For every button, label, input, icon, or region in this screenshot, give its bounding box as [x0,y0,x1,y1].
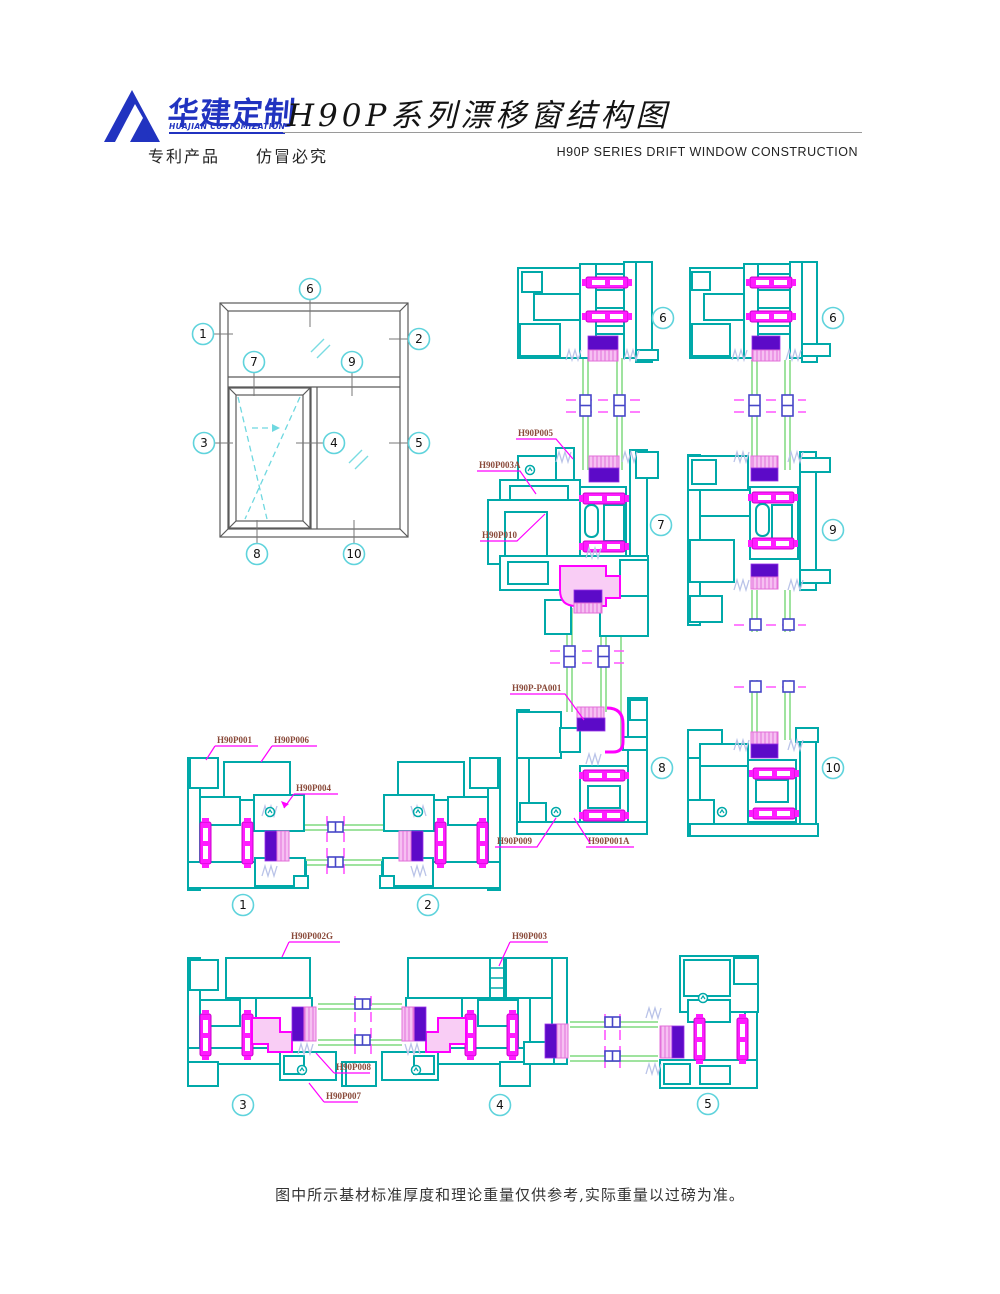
glazing-block [751,468,778,481]
svg-text:3: 3 [239,1098,247,1112]
glazing-block [265,831,277,861]
glazing-block [574,590,602,603]
glazing-block [751,744,778,758]
svg-text:7: 7 [250,355,258,369]
callout-5: 5 [698,1094,719,1115]
glazing-pad [751,732,778,744]
glazing-block [545,1024,557,1058]
section-7-mid [488,448,658,636]
svg-text:4: 4 [496,1098,504,1112]
svg-text:8: 8 [253,547,261,561]
part-label-h90p006: H90P006 [261,735,317,762]
elevation-callout-2: 2 [409,329,430,350]
svg-text:9: 9 [348,355,356,369]
glazing-pad [588,350,618,361]
svg-text:H90P002G: H90P002G [291,931,333,941]
section-6-right [690,262,830,362]
gasket [749,808,799,819]
svg-text:H90P008: H90P008 [336,1062,371,1072]
glass-run-mid-upper [566,358,640,470]
callout-6-mid: 6 [653,308,674,329]
svg-text:H90P006: H90P006 [274,735,309,745]
glazing-block [752,336,780,350]
callout-7-mid: 7 [651,515,672,536]
gasket [200,1010,211,1060]
callout-10-right: 10 [823,758,844,779]
svg-text:10: 10 [346,547,361,561]
glazing-block [672,1026,684,1058]
svg-text:6: 6 [829,311,837,325]
gasket [737,1014,748,1064]
footer-note: 图中所示基材标准厚度和理论重量仅供参考,实际重量以过磅为准。 [0,1184,1000,1205]
svg-text:H90P007: H90P007 [326,1091,361,1101]
glazing-block [577,718,605,731]
section-6-mid [518,262,658,362]
elevation-callout-4: 4 [324,433,345,454]
glazing-block [751,564,778,577]
glazing-pad [751,456,778,468]
elevation-callout-5: 5 [409,433,430,454]
svg-text:9: 9 [829,523,837,537]
glass-break-symbol [605,1014,620,1068]
glass-break-symbol [566,395,640,416]
callout-3: 3 [233,1095,254,1116]
operable-sash [229,388,310,528]
gasket [579,493,629,504]
glazing-pad [277,831,289,861]
glazing-pad [751,577,778,589]
svg-text:H90P003A: H90P003A [479,460,521,470]
part-label-h90p002g: H90P002G [282,931,340,957]
svg-text:3: 3 [200,436,208,450]
svg-text:6: 6 [659,311,667,325]
gasket [746,277,796,288]
construction-drawing: 1 2 3 4 5 6 7 8 9 10 [0,0,1000,1294]
glazing-pad [304,1007,316,1041]
callout-8-mid: 8 [652,758,673,779]
gasket [748,538,798,549]
elevation-callout-10: 10 [344,544,365,565]
elevation-callout-8: 8 [247,544,268,565]
svg-text:1: 1 [199,327,207,341]
section-10-right [688,728,818,836]
svg-text:H90P010: H90P010 [482,530,517,540]
glazing-block [589,468,619,482]
glass-run-row2-right [570,1014,658,1068]
window-elevation: 1 2 3 4 5 6 7 8 9 10 [193,279,430,565]
svg-text:H90P009: H90P009 [497,836,532,846]
section-8-mid [517,698,647,834]
elevation-callout-6: 6 [300,279,321,300]
glazing-pad [557,1024,568,1058]
callout-9-right: 9 [823,520,844,541]
glass-run-right-upper [734,360,806,470]
svg-text:7: 7 [657,518,665,532]
sash-swing-lines [238,397,300,519]
svg-text:5: 5 [415,436,423,450]
elevation-callout-1: 1 [193,324,214,345]
gasket [749,768,799,779]
callout-2: 2 [418,895,439,916]
svg-text:H90P004: H90P004 [296,783,331,793]
elevation-callout-3: 3 [194,433,215,454]
gasket [582,277,632,288]
callout-6-right: 6 [823,308,844,329]
gasket [200,818,211,868]
section-1-left [188,758,308,890]
section-2-right [380,758,500,890]
gasket [579,541,629,552]
gasket [579,770,629,781]
svg-text:H90P001: H90P001 [217,735,252,745]
callout-1: 1 [233,895,254,916]
svg-text:4: 4 [330,436,338,450]
svg-text:2: 2 [424,898,432,912]
gasket [694,1014,705,1064]
glass-hatch-top [311,339,330,358]
glazing-block [292,1007,304,1041]
svg-text:H90P005: H90P005 [518,428,553,438]
glazing-pad [752,350,780,361]
svg-text:2: 2 [415,332,423,346]
glazing-block [588,336,618,350]
gasket [746,311,796,322]
elevation-callout-9: 9 [342,352,363,373]
glass-break-symbol [550,646,628,667]
gasket [582,311,632,322]
svg-text:H90P-PA001: H90P-PA001 [512,683,562,693]
part-label-h90p001: H90P001 [206,735,258,760]
gasket [748,492,798,503]
section-5-right [646,956,758,1088]
gasket [242,818,253,868]
elevation-callout-7: 7 [244,352,265,373]
gasket [579,810,629,821]
svg-text:5: 5 [704,1097,712,1111]
glazing-pad [574,603,602,613]
glazing-pad [660,1026,672,1058]
section-9-right [688,452,830,625]
glass-break-symbol [734,395,806,416]
callout-4: 4 [490,1095,511,1116]
glass-break-symbol [327,816,344,874]
svg-text:8: 8 [658,761,666,775]
glass-stub-below-9 [734,590,806,632]
svg-text:H90P003: H90P003 [512,931,547,941]
glass-hatch-right [349,450,368,469]
glazing-pad [589,456,619,468]
glass-break-symbol [355,996,371,1054]
svg-text:H90P001A: H90P001A [588,836,630,846]
svg-text:10: 10 [825,761,840,775]
glass-run-row2-left [318,996,402,1054]
svg-text:6: 6 [306,282,314,296]
svg-text:1: 1 [239,898,247,912]
